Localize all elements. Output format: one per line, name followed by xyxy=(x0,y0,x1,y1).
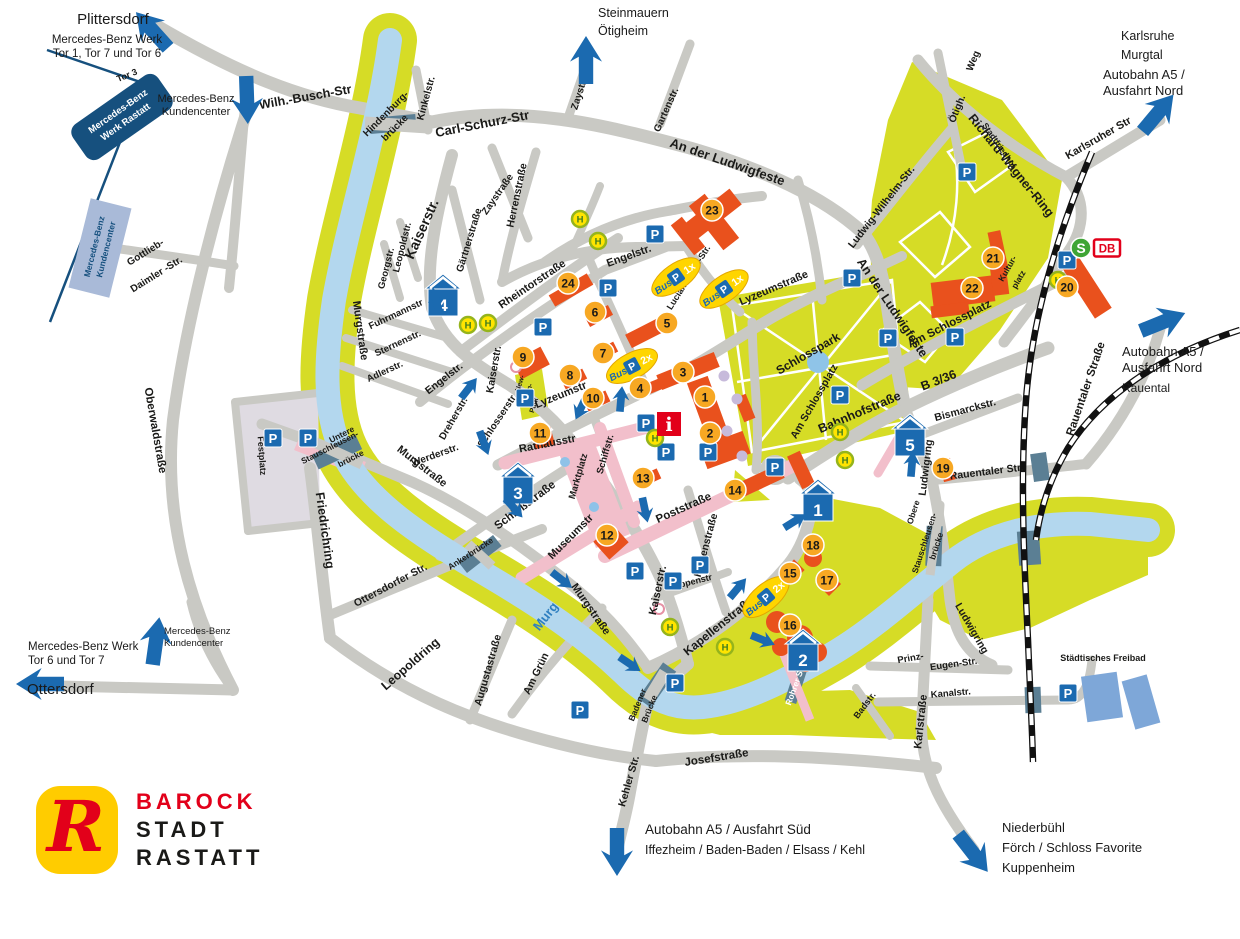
destination-line: Murgtal xyxy=(1121,48,1163,62)
destination-line: Tor 6 und Tor 7 xyxy=(28,655,105,667)
sight-marker-number: 11 xyxy=(534,427,547,441)
sight-marker-number: 16 xyxy=(783,619,797,633)
info-letter: i xyxy=(665,414,672,436)
mercedes-plant-box: Mercedes-BenzWerk Rastatt xyxy=(67,70,176,164)
street-label: An der Ludwigfeste xyxy=(668,135,787,188)
sight-marker-number: 18 xyxy=(806,539,820,553)
destination-line: Mercedes-Benz Werk xyxy=(52,34,163,46)
sight-marker-number: 23 xyxy=(705,204,719,218)
sight-marker-number: 22 xyxy=(965,282,979,296)
destination-line: Ötigheim xyxy=(598,24,648,38)
street-label: Obere xyxy=(905,499,922,526)
destination-line: Ottersdorf xyxy=(27,681,95,698)
destination-label-niederbuehl: NiederbühlFörch / Schloss FavoriteKuppen… xyxy=(1002,820,1142,875)
logo-letter: R xyxy=(47,785,105,868)
sight-marker: 12 xyxy=(596,524,618,546)
sight-marker-number: 4 xyxy=(637,382,644,396)
fountain-dot xyxy=(560,457,570,467)
parkhaus-number: 3 xyxy=(513,484,522,503)
sight-marker: 17 xyxy=(816,569,838,591)
destination-line: Rauental xyxy=(1122,381,1170,395)
parking-icon: P xyxy=(299,429,317,447)
bus-stop-letter: H xyxy=(485,319,492,330)
street-label: Ottersdorfer Str. xyxy=(352,561,429,610)
railway xyxy=(1023,152,1240,762)
sight-marker-number: 7 xyxy=(600,347,607,361)
parking-icon-letter: P xyxy=(771,460,780,475)
parking-icon-letter: P xyxy=(704,445,713,460)
sight-marker: 23 xyxy=(701,199,723,221)
sight-marker-number: 5 xyxy=(664,317,671,331)
parking-icon-letter: P xyxy=(696,558,705,573)
destination-label-autobahn-sued: Autobahn A5 / Ausfahrt SüdIffezheim / Ba… xyxy=(645,822,865,857)
parking-icon-letter: P xyxy=(539,320,548,335)
tree-dot xyxy=(719,371,730,382)
destination-line: Ausfahrt Nord xyxy=(1103,83,1183,98)
parking-icon: P xyxy=(599,279,617,297)
sight-marker: 16 xyxy=(779,614,801,636)
tree-dot xyxy=(722,426,733,437)
parking-icon-letter: P xyxy=(604,281,613,296)
parking-icon: P xyxy=(534,318,552,336)
destination-label-kundencenter-bottom: Mercedes-BenzKundencenter xyxy=(164,626,231,649)
sight-marker: 1 xyxy=(694,386,716,408)
sight-marker: 18 xyxy=(802,534,824,556)
building-round xyxy=(772,638,790,656)
sight-marker: 5 xyxy=(656,312,678,334)
parking-icon: P xyxy=(1059,684,1077,702)
parking-icon: P xyxy=(626,562,644,580)
destination-line: Karlsruhe xyxy=(1121,29,1175,43)
destination-label-steinmauern: SteinmauernÖtigheim xyxy=(598,6,669,38)
sight-marker: 20 xyxy=(1056,276,1078,298)
destination-line: Iffezheim / Baden-Baden / Elsass / Kehl xyxy=(645,843,865,857)
mercedes-area: Mercedes-BenzWerk RastattMercedes-BenzKu… xyxy=(47,50,177,322)
parking-icon-letter: P xyxy=(576,703,585,718)
street-label: Werderstr. xyxy=(410,442,460,469)
tree-dot xyxy=(732,394,743,405)
logo-text: BAROCK STADT RASTATT xyxy=(136,788,263,872)
sight-marker-number: 1 xyxy=(702,391,709,405)
destination-line: Mercedes-Benz Werk xyxy=(28,641,139,653)
sight-marker-number: 2 xyxy=(707,427,714,441)
parking-icon: P xyxy=(664,572,682,590)
destination-arrow xyxy=(946,824,1001,882)
sight-marker-number: 24 xyxy=(561,277,575,291)
logo-line-2: STADT xyxy=(136,816,263,844)
destination-line: Kuppenheim xyxy=(1002,860,1075,875)
bus-stop-icon: H xyxy=(480,315,496,331)
plant-box-bg xyxy=(67,70,176,164)
sight-marker: 6 xyxy=(584,301,606,323)
parking-icon-letter: P xyxy=(963,165,972,180)
sight-marker-number: 15 xyxy=(783,567,797,581)
sight-marker: 7 xyxy=(592,342,614,364)
fountain-dot xyxy=(589,502,599,512)
sight-marker-number: 3 xyxy=(680,366,687,380)
parking-icon-letter: P xyxy=(1063,253,1072,268)
destination-arrow xyxy=(570,36,602,84)
bus-stop-icon: H xyxy=(837,452,853,468)
sight-marker-number: 19 xyxy=(936,462,950,476)
parking-icon: P xyxy=(958,163,976,181)
sight-marker-number: 12 xyxy=(600,529,614,543)
parking-icon-letter: P xyxy=(848,271,857,286)
sight-marker-number: 13 xyxy=(636,472,650,486)
bus-stop-letter: H xyxy=(465,321,472,332)
bus-stop-icon: H xyxy=(460,317,476,333)
bus-stop-icon: H xyxy=(717,639,733,655)
parking-icon-letter: P xyxy=(836,388,845,403)
bridge xyxy=(1030,452,1050,482)
sight-marker-number: 17 xyxy=(820,574,834,588)
parking-icon-letter: P xyxy=(304,431,313,446)
city-logo: R BAROCK STADT RASTATT xyxy=(36,786,263,874)
destination-arrow xyxy=(601,828,633,876)
sight-marker-number: 9 xyxy=(520,351,527,365)
destination-line: Mercedes-Benz xyxy=(164,626,231,637)
sight-marker: 11 xyxy=(529,422,551,444)
parking-icon-letter: P xyxy=(669,574,678,589)
sight-marker-number: 14 xyxy=(728,484,742,498)
destination-line: Förch / Schloss Favorite xyxy=(1002,840,1142,855)
parking-icon: P xyxy=(571,701,589,719)
parkhaus-number: 1 xyxy=(813,501,822,520)
street-label: Weg xyxy=(965,49,983,73)
logo-line-1: BAROCK xyxy=(136,788,263,816)
parkhaus-number: 2 xyxy=(798,651,807,670)
freibad-building xyxy=(1081,672,1123,723)
bus-stop-letter: H xyxy=(595,237,602,248)
bus-stop-icon: H xyxy=(662,619,678,635)
street-label: Oberwaldstraße xyxy=(141,387,168,475)
destination-label-autobahn-nord-rauental: Autobahn A5 /Ausfahrt NordRauental xyxy=(1122,344,1204,395)
destination-line: Tor 1, Tor 7 und Tor 6 xyxy=(53,48,161,60)
parking-icon-letter: P xyxy=(671,676,680,691)
logo-line-3: RASTATT xyxy=(136,844,263,872)
bus-stop-letter: H xyxy=(722,643,729,654)
sbahn-icon: S xyxy=(1071,238,1091,258)
parking-icon: P xyxy=(264,429,282,447)
destination-line: Kundencenter xyxy=(164,638,223,649)
destination-line: Autobahn A5 / xyxy=(1103,67,1185,82)
sight-marker: 19 xyxy=(932,457,954,479)
destination-line: Ausfahrt Nord xyxy=(1122,360,1202,375)
sight-marker: 13 xyxy=(632,467,654,489)
destination-line: Autobahn A5 / xyxy=(1122,344,1204,359)
parking-icon-letter: P xyxy=(631,564,640,579)
bus-stop-icon: H xyxy=(590,233,606,249)
parking-icon-letter: P xyxy=(662,445,671,460)
bus-stop-letter: H xyxy=(842,456,849,467)
destination-label-kundencenter-top: Mercedes-BenzKundencenter xyxy=(157,93,234,118)
street-label: Josefstraße xyxy=(684,747,750,769)
parking-icon-letter: P xyxy=(521,391,530,406)
street-label: Städtisches Freibad xyxy=(1060,653,1146,663)
sight-marker: 4 xyxy=(629,377,651,399)
parking-icon: P xyxy=(831,386,849,404)
sight-marker: 2 xyxy=(699,422,721,444)
freibad-building xyxy=(1122,674,1161,729)
city-map-rastatt: Mercedes-BenzWerk RastattMercedes-BenzKu… xyxy=(0,0,1240,939)
destination-line: Mercedes-Benz xyxy=(157,93,234,105)
parking-icon: P xyxy=(843,269,861,287)
db-icon: DB xyxy=(1094,240,1120,257)
sight-marker: 24 xyxy=(557,272,579,294)
destination-label-plittersdorf: PlittersdorfMercedes-Benz WerkTor 1, Tor… xyxy=(52,11,163,60)
sight-marker-number: 21 xyxy=(986,252,1000,266)
sight-marker-number: 8 xyxy=(567,369,574,383)
destination-line: Steinmauern xyxy=(598,6,669,20)
parking-icon: P xyxy=(946,328,964,346)
sight-marker-number: 20 xyxy=(1060,281,1074,295)
parking-icon-letter: P xyxy=(651,227,660,242)
destination-arrow xyxy=(1135,298,1191,346)
sbahn-letter: S xyxy=(1076,240,1085,256)
bus-stop-icon: H xyxy=(572,211,588,227)
sight-marker: 15 xyxy=(779,562,801,584)
tree-dot xyxy=(737,451,748,462)
parking-icon-letter: P xyxy=(951,330,960,345)
sight-marker: 9 xyxy=(512,346,534,368)
parking-icon: P xyxy=(691,556,709,574)
sight-marker: 10 xyxy=(582,387,604,409)
destination-line: Autobahn A5 / Ausfahrt Süd xyxy=(645,822,811,837)
parking-icon: P xyxy=(699,443,717,461)
destination-label-karlsruhe: KarlsruheMurgtalAutobahn A5 /Ausfahrt No… xyxy=(1103,29,1185,98)
bus-stop-icon: H xyxy=(832,424,848,440)
parking-icon: P xyxy=(666,674,684,692)
destination-line: Kundencenter xyxy=(162,106,231,118)
parking-icon: P xyxy=(879,329,897,347)
sight-marker-number: 10 xyxy=(586,392,600,406)
street-label: Augustastraße xyxy=(472,633,504,707)
logo-mark: R xyxy=(36,786,118,874)
parking-icon: P xyxy=(766,458,784,476)
parking-icon-letter: P xyxy=(642,416,651,431)
bus-stop-letter: H xyxy=(667,623,674,634)
sight-marker: 22 xyxy=(961,277,983,299)
db-letters: DB xyxy=(1099,244,1116,256)
sight-marker: 21 xyxy=(982,247,1004,269)
parking-icon-letter: P xyxy=(884,331,893,346)
parking-icon: P xyxy=(646,225,664,243)
parking-icon-letter: P xyxy=(1064,686,1073,701)
sight-marker: 8 xyxy=(559,364,581,386)
bus-stop-letter: H xyxy=(837,428,844,439)
sight-marker: 3 xyxy=(672,361,694,383)
bus-stop-letter: H xyxy=(577,215,584,226)
street-label: Gartenstr. xyxy=(652,86,681,134)
tourist-info-icon: i xyxy=(657,412,681,436)
parking-icon-letter: P xyxy=(269,431,278,446)
sight-marker: 14 xyxy=(724,479,746,501)
parking-icon: P xyxy=(516,389,534,407)
sight-marker-number: 6 xyxy=(592,306,599,320)
destination-line: Plittersdorf xyxy=(77,11,150,28)
destination-line: Niederbühl xyxy=(1002,820,1065,835)
